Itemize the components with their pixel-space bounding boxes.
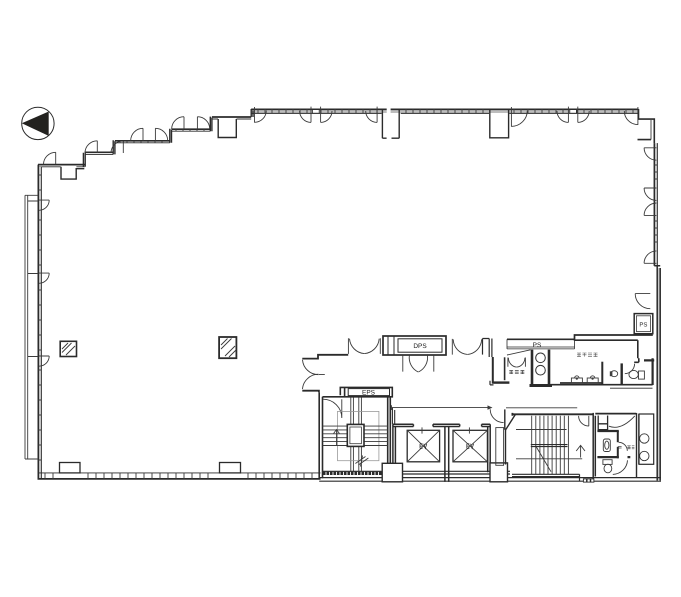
svg-text:DPS: DPS — [413, 343, 427, 350]
svg-text:PS: PS — [533, 342, 542, 349]
svg-text:PS: PS — [639, 322, 647, 329]
svg-text:EPS: EPS — [362, 390, 376, 397]
